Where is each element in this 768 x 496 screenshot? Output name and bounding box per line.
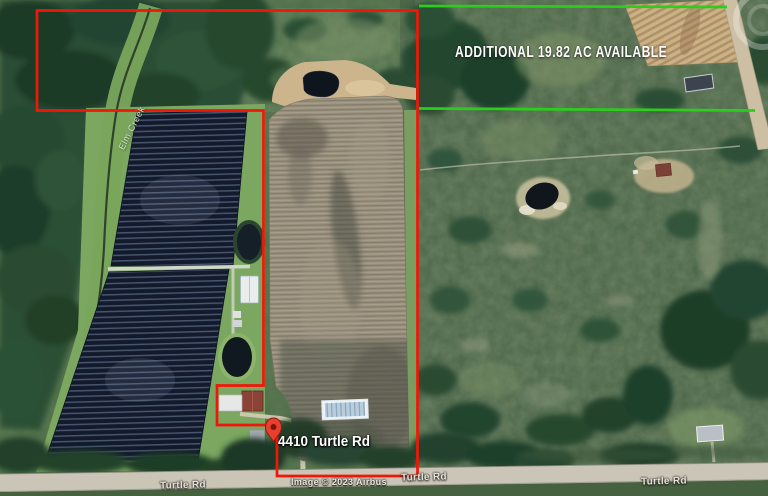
terrain-layer — [0, 0, 768, 496]
blue-panel-array — [322, 399, 369, 420]
green-boundary-line-top — [419, 6, 727, 7]
satellite-map-view[interactable]: ADDITIONAL 19.82 AC AVAILABLE 4410 Turtl… — [0, 0, 768, 496]
